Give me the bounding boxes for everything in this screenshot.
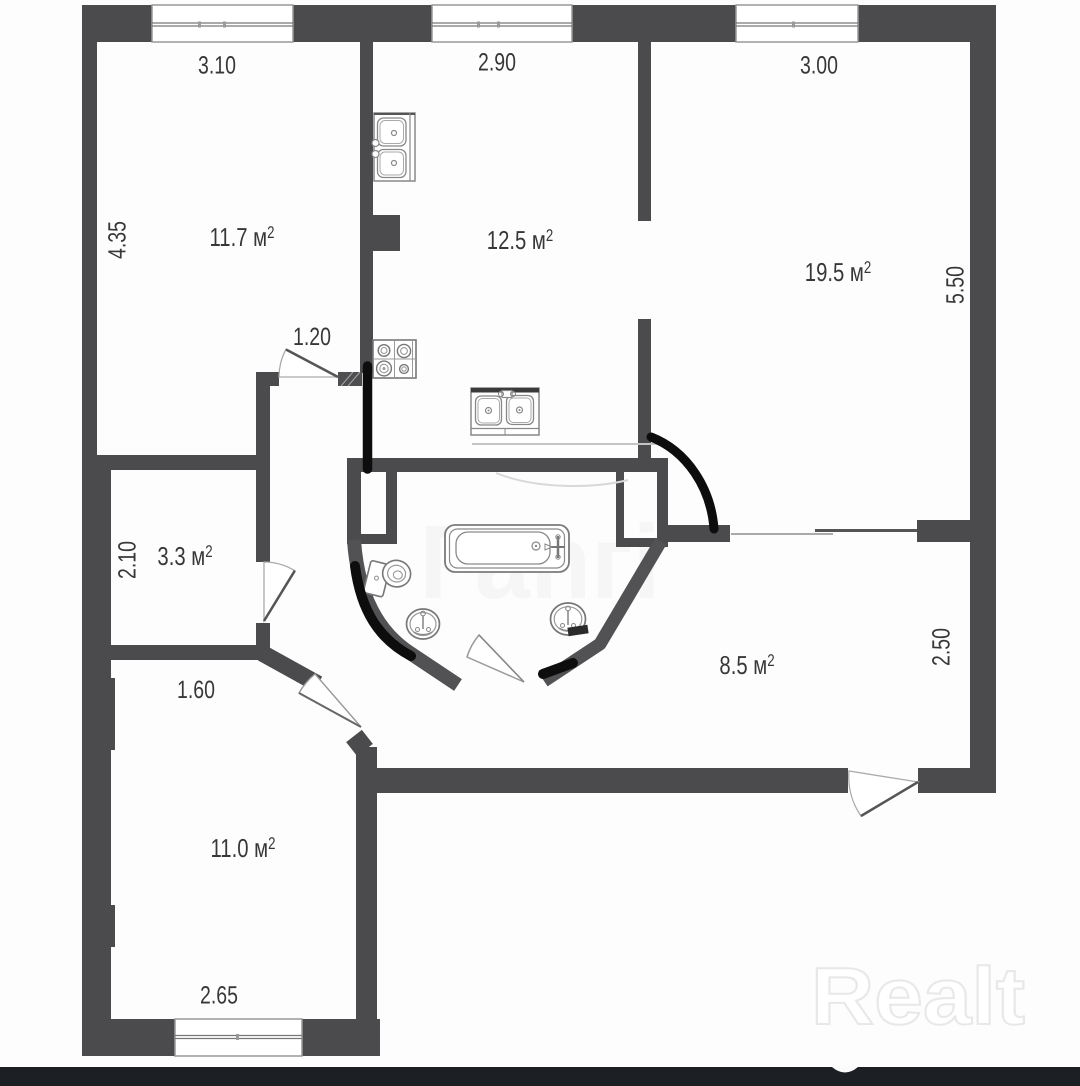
svg-text:19.5 м2: 19.5 м2 xyxy=(805,257,871,287)
svg-text:3.00: 3.00 xyxy=(800,52,838,80)
svg-text:4.35: 4.35 xyxy=(104,221,132,259)
svg-text:2.50: 2.50 xyxy=(928,628,956,666)
svg-text:11.7 м2: 11.7 м2 xyxy=(210,222,275,252)
svg-text:8.5 м2: 8.5 м2 xyxy=(719,650,774,680)
svg-text:Realt: Realt xyxy=(811,952,1025,1042)
svg-text:1.20: 1.20 xyxy=(293,323,331,351)
svg-text:3.3 м2: 3.3 м2 xyxy=(157,541,212,571)
svg-text:5.50: 5.50 xyxy=(942,266,970,304)
svg-text:3.10: 3.10 xyxy=(198,52,236,80)
svg-text:1.60: 1.60 xyxy=(177,676,215,704)
svg-text:12.5 м2: 12.5 м2 xyxy=(487,225,553,255)
svg-text:2.10: 2.10 xyxy=(114,541,142,579)
svg-text:2.65: 2.65 xyxy=(200,982,238,1010)
svg-text:11.0 м2: 11.0 м2 xyxy=(211,833,276,863)
svg-text:2.90: 2.90 xyxy=(478,49,516,77)
